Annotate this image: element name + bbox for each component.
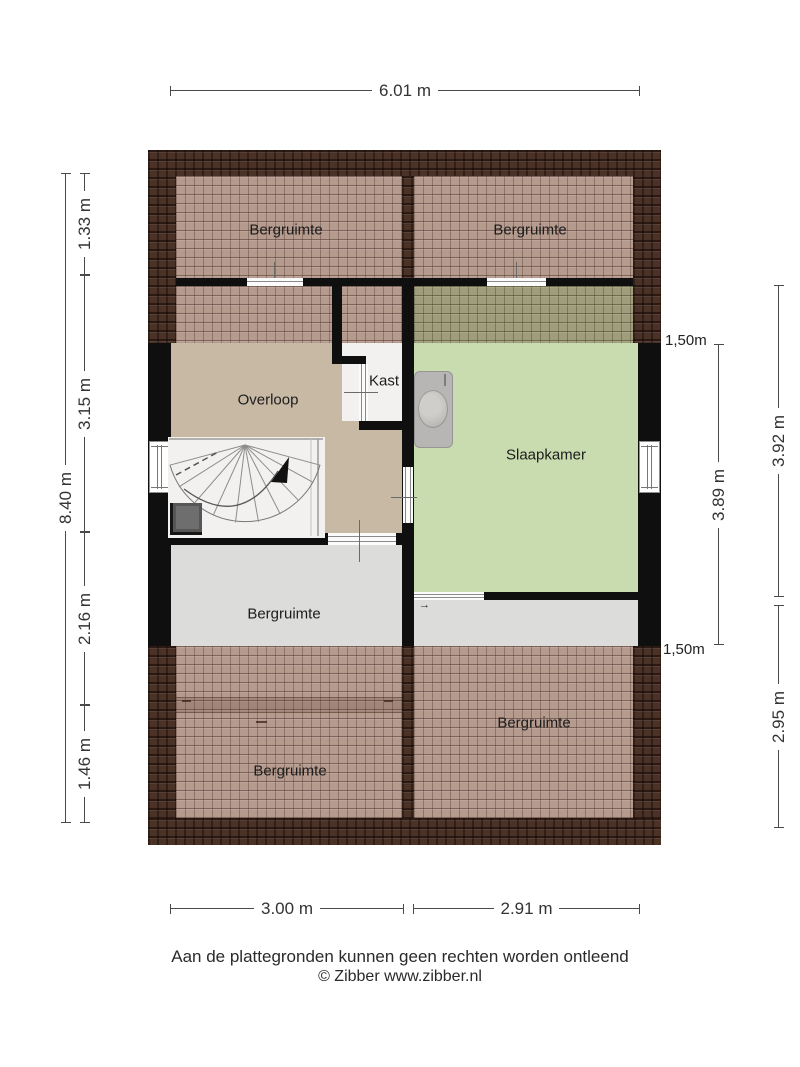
window-frame [151,446,168,447]
label-kast: Kast [369,373,399,390]
room-bergruimte-bottom-left-floor [176,646,402,818]
dim-left-seg-2: 3.15 m [84,275,85,532]
wall-top-divider [402,176,414,278]
door-swing-arrow: → [419,600,430,611]
dim-left-seg-4: 1.46 m [84,705,85,823]
room-bergruimte-bottom-right-floor [414,646,633,818]
roof-border-right-upper [633,150,661,345]
dim-label: 3.15 m [74,371,96,437]
sink-fixture [414,371,453,448]
knee-tick [384,700,393,702]
dim-label: 8.40 m [55,465,77,531]
opening-line [247,281,303,282]
opening-tick [274,262,275,278]
sloped-ceiling-band-left [176,286,402,343]
room-bergruimte-right-floor [414,600,638,646]
window-glazing [157,445,158,489]
dim-top-width: 6.01 m [170,90,640,91]
opening-line [328,536,396,537]
dim-label: 1.46 m [74,731,96,797]
roof-border-left-lower [148,646,176,845]
window-glazing [161,445,162,489]
opening-bergruimte-mid [328,533,396,545]
label-bergruimte-mid: Bergruimte [247,606,320,623]
opening-top-left [247,278,303,286]
opening-line [487,281,546,282]
wall-top-horizontal [176,278,633,286]
opening-top-right [487,278,546,286]
knee-height-bottom: 1,50m [663,641,705,658]
dim-label: 3.00 m [254,898,320,920]
label-slaapkamer: Slaapkamer [506,447,586,464]
window-frame [151,487,168,488]
dim-right-outer-1: 3.92 m [778,285,779,597]
dim-left-total: 8.40 m [65,173,66,823]
dim-label: 2.91 m [494,898,560,920]
knee-height-top: 1,50m [665,332,707,349]
opening-tick [516,262,517,278]
dim-left-seg-3: 2.16 m [84,532,85,705]
label-overloop: Overloop [238,392,299,409]
footer-disclaimer: Aan de plattegronden kunnen geen rechten… [0,947,800,967]
wall-slaapkamer-bottom [484,592,661,600]
sink-tap [444,374,446,386]
dim-right-outer-2: 2.95 m [778,605,779,828]
dim-label: 2.16 m [74,586,96,652]
knee-tick [182,700,191,702]
dim-left-seg-1: 1.33 m [84,173,85,275]
roof-border-top [148,150,661,178]
wall-right [638,343,661,646]
duct-block [170,503,202,535]
roof-border-left-upper [148,150,176,345]
dim-label: 6.01 m [372,80,438,102]
label-bergruimte-bottom-right: Bergruimte [497,715,570,732]
dim-label: 2.95 m [768,684,790,750]
roof-border-bottom [148,818,661,845]
door-line [405,467,406,523]
door-tick [344,392,378,393]
window-right [639,441,660,493]
dim-right-inner: 3.89 m [718,344,719,645]
sloped-ceiling-band-right [414,286,633,343]
sink-basin [418,390,448,428]
opening-tick [359,520,360,562]
window-frame [641,446,658,447]
dim-bottom-left: 3.00 m [170,908,404,909]
label-bergruimte-top-left: Bergruimte [249,222,322,239]
opening-line [414,594,484,595]
dim-label: 1.33 m [74,191,96,257]
wall-kast-bottom [359,421,414,430]
wall-kast-step [332,356,366,364]
opening-line [414,597,484,598]
window-frame [641,487,658,488]
wall-overloop-bottom-right [396,533,414,545]
knee-tick [256,721,267,723]
room-bergruimte-mid-floor [170,545,402,646]
floor-plan: → Bergruimte Bergruimte Overloop Kast Sl… [0,0,800,1067]
wall-kast-left [332,286,342,364]
wall-bottom-divider [402,646,414,818]
door-line [410,467,411,523]
window-glazing [651,445,652,489]
wall-center-divider [402,286,414,646]
door-slaapkamer [403,467,413,523]
opening-line [328,541,396,542]
door-tick [391,497,417,498]
dim-label: 3.89 m [708,462,730,528]
footer-copyright: © Zibber www.zibber.nl [0,968,800,986]
window-left [149,441,170,493]
window-glazing [647,445,648,489]
roof-border-right-lower [633,646,661,845]
dim-bottom-right: 2.91 m [413,908,640,909]
knee-line-band [176,697,402,713]
label-bergruimte-top-right: Bergruimte [493,222,566,239]
label-bergruimte-bottom-left: Bergruimte [253,763,326,780]
dim-label: 3.92 m [768,408,790,474]
